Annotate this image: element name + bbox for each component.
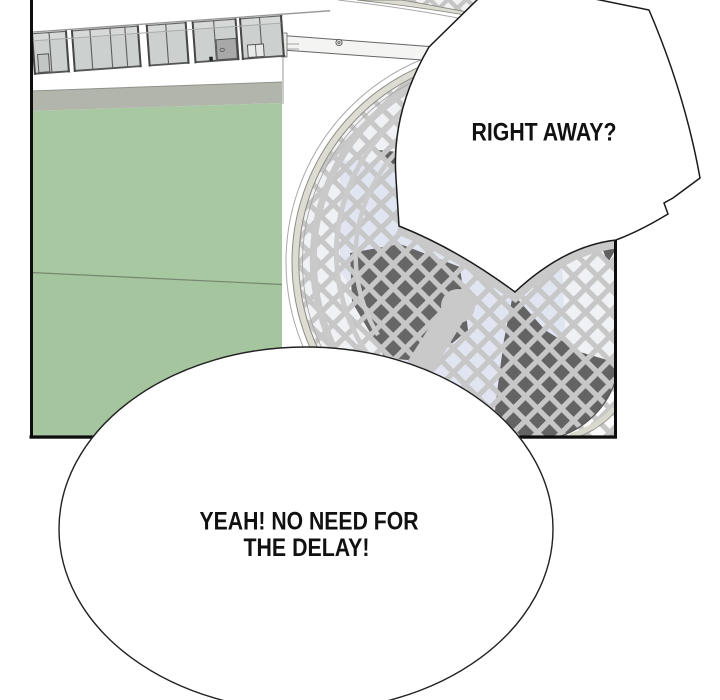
svg-text:YEAH! NO NEED FOR: YEAH! NO NEED FOR xyxy=(200,508,419,536)
svg-text:RIGHT AWAY?: RIGHT AWAY? xyxy=(472,119,617,147)
svg-text:THE DELAY!: THE DELAY! xyxy=(244,534,370,562)
